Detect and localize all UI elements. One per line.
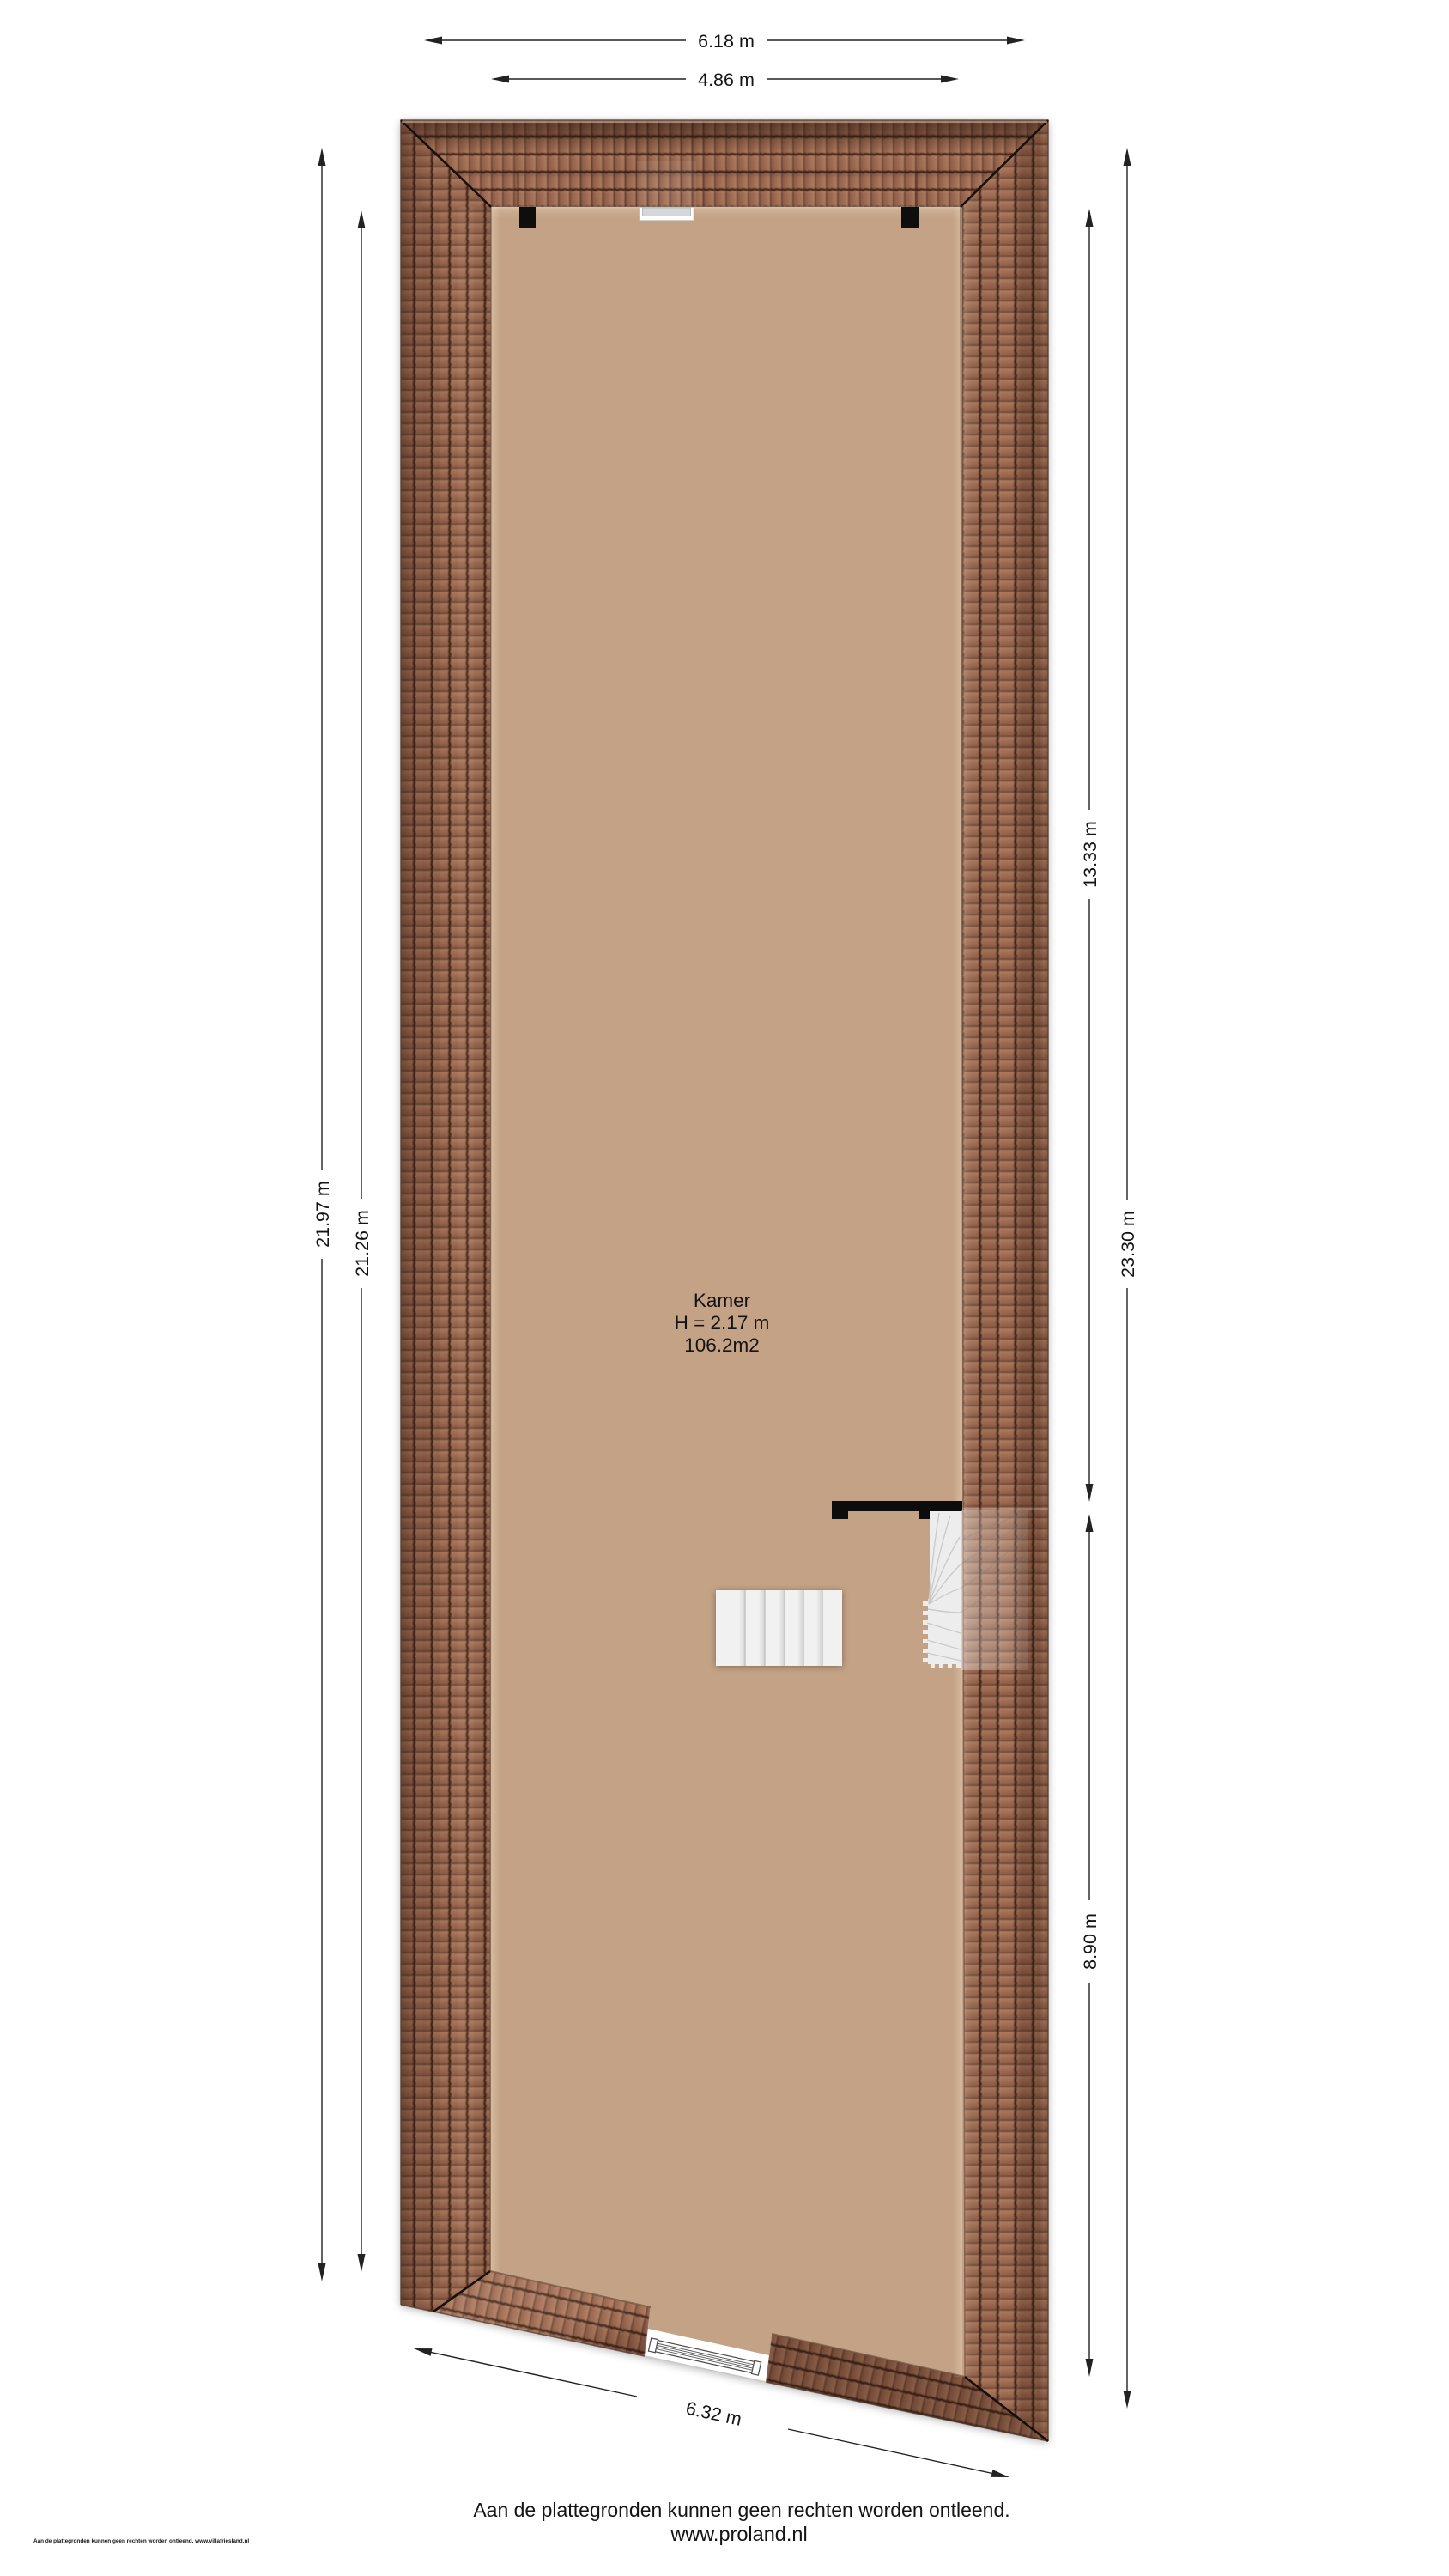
svg-text:8.90 m: 8.90 m (1080, 1913, 1100, 1970)
svg-text:H = 2.17 m: H = 2.17 m (675, 1312, 770, 1334)
svg-text:23.30 m: 23.30 m (1118, 1211, 1138, 1278)
svg-text:4.86 m: 4.86 m (698, 70, 755, 90)
svg-text:6.32 m: 6.32 m (684, 2397, 743, 2429)
svg-text:21.26 m: 21.26 m (352, 1210, 373, 1277)
svg-text:Aan de plattegronden kunnen ge: Aan de plattegronden kunnen geen rechten… (473, 2499, 1009, 2521)
svg-text:21.97 m: 21.97 m (312, 1181, 333, 1248)
svg-text:6.18 m: 6.18 m (698, 31, 755, 52)
svg-text:13.33 m: 13.33 m (1080, 821, 1100, 888)
svg-text:Kamer: Kamer (694, 1290, 751, 1311)
svg-text:106.2m2: 106.2m2 (684, 1334, 760, 1356)
svg-text:www.proland.nl: www.proland.nl (670, 2523, 807, 2545)
svg-text:Aan de plattegronden kunnen ge: Aan de plattegronden kunnen geen rechten… (33, 2538, 249, 2544)
